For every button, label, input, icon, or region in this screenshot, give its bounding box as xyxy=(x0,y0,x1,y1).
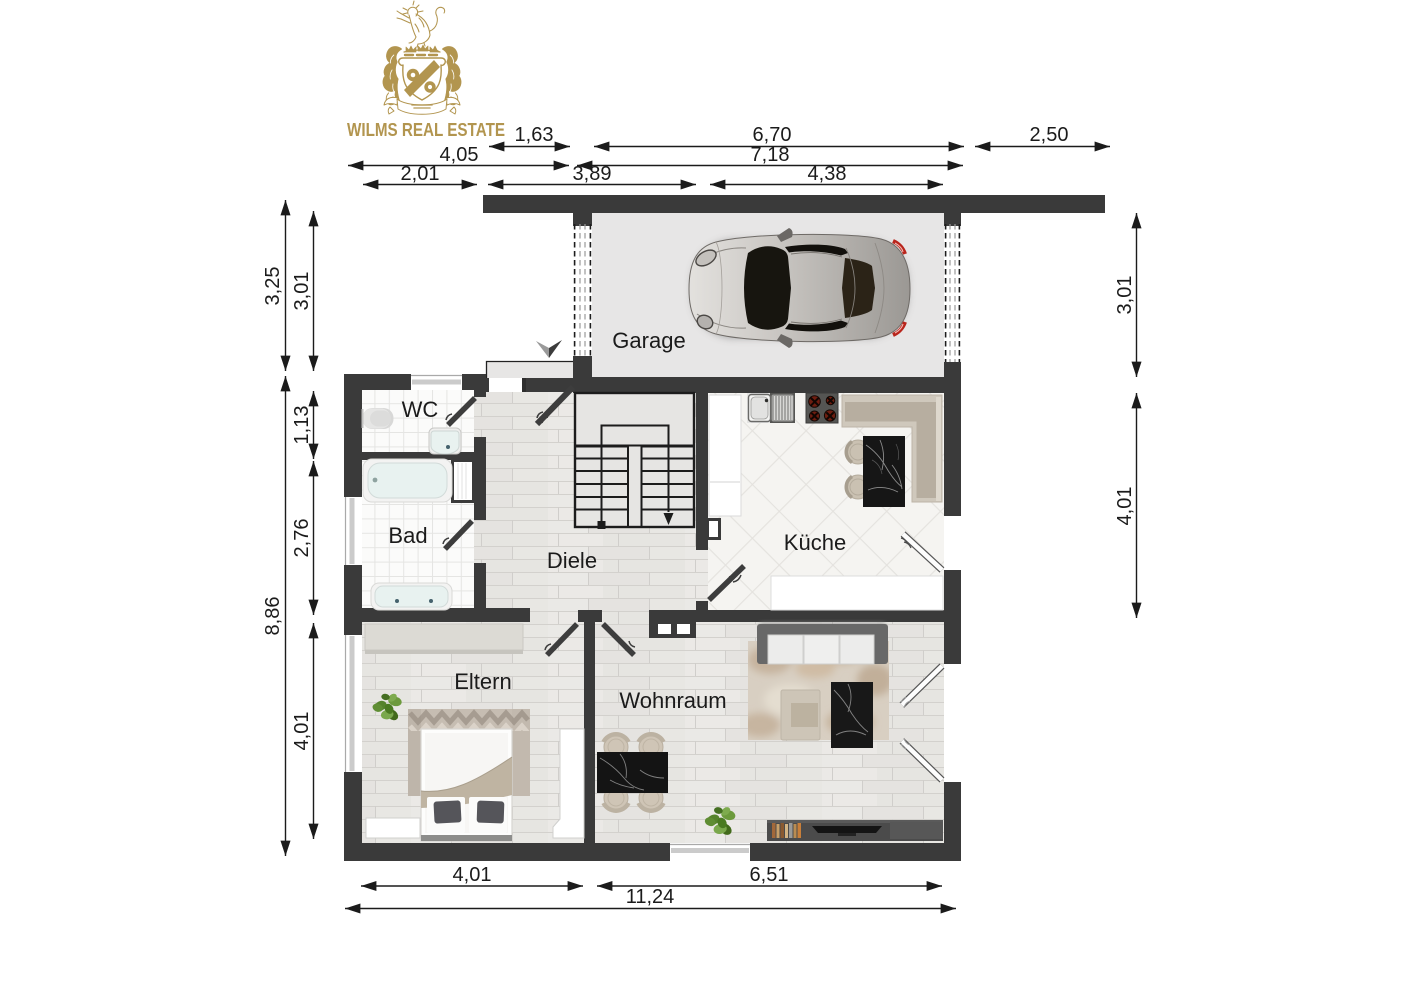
svg-text:3,01: 3,01 xyxy=(1114,276,1136,315)
svg-text:Küche: Küche xyxy=(784,530,846,555)
svg-text:4,01: 4,01 xyxy=(1114,487,1136,526)
svg-text:Garage: Garage xyxy=(612,328,685,353)
svg-text:1,63: 1,63 xyxy=(515,124,554,146)
svg-text:4,01: 4,01 xyxy=(291,712,313,751)
svg-text:4,05: 4,05 xyxy=(440,144,479,166)
svg-text:Diele: Diele xyxy=(547,548,597,573)
svg-text:2,01: 2,01 xyxy=(401,163,440,185)
svg-text:WILMS REAL ESTATE: WILMS REAL ESTATE xyxy=(347,120,505,140)
svg-text:3,01: 3,01 xyxy=(291,272,313,311)
svg-text:6,51: 6,51 xyxy=(750,864,789,886)
svg-text:1,13: 1,13 xyxy=(291,406,313,445)
svg-text:Eltern: Eltern xyxy=(454,669,511,694)
svg-text:3,25: 3,25 xyxy=(262,267,284,306)
svg-text:WC: WC xyxy=(402,397,439,422)
svg-text:4,38: 4,38 xyxy=(808,163,847,185)
svg-text:3,89: 3,89 xyxy=(573,163,612,185)
svg-text:2,76: 2,76 xyxy=(291,519,313,558)
svg-text:Bad: Bad xyxy=(388,523,427,548)
svg-text:11,24: 11,24 xyxy=(626,886,675,908)
svg-text:4,01: 4,01 xyxy=(453,864,492,886)
svg-text:7,18: 7,18 xyxy=(751,144,790,166)
svg-text:8,86: 8,86 xyxy=(262,597,284,636)
svg-text:2,50: 2,50 xyxy=(1030,124,1069,146)
svg-text:Wohnraum: Wohnraum xyxy=(619,688,726,713)
svg-text:6,70: 6,70 xyxy=(753,124,792,146)
